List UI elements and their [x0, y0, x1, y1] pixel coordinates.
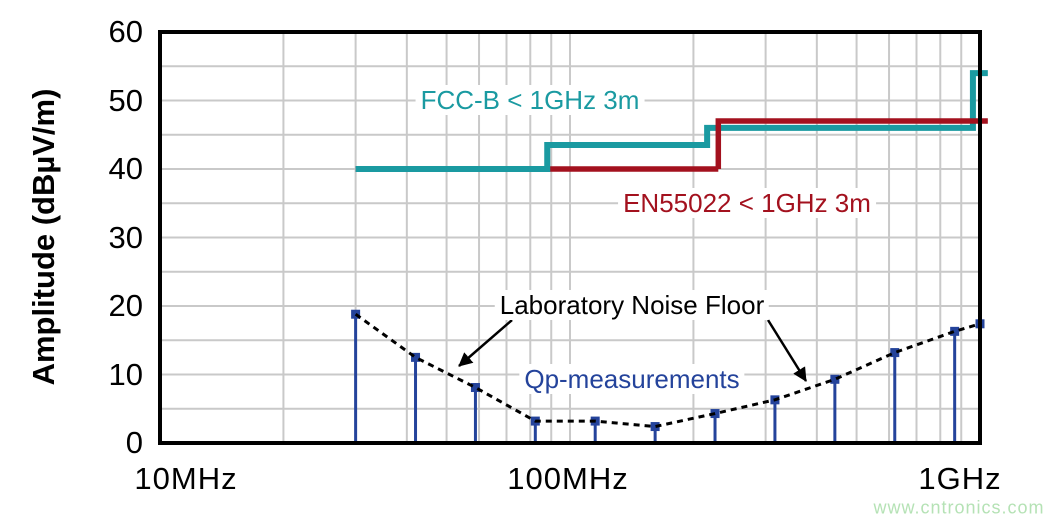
annotation-arrows — [459, 320, 806, 381]
gridlines — [160, 32, 980, 443]
annotation-arrow — [768, 320, 806, 381]
chart-plot-area — [0, 0, 1062, 524]
annotation-arrow — [459, 320, 512, 366]
emc-limits-chart: Amplitude (dBµV/m) 0102030405060 10MHz 1… — [0, 0, 1062, 524]
